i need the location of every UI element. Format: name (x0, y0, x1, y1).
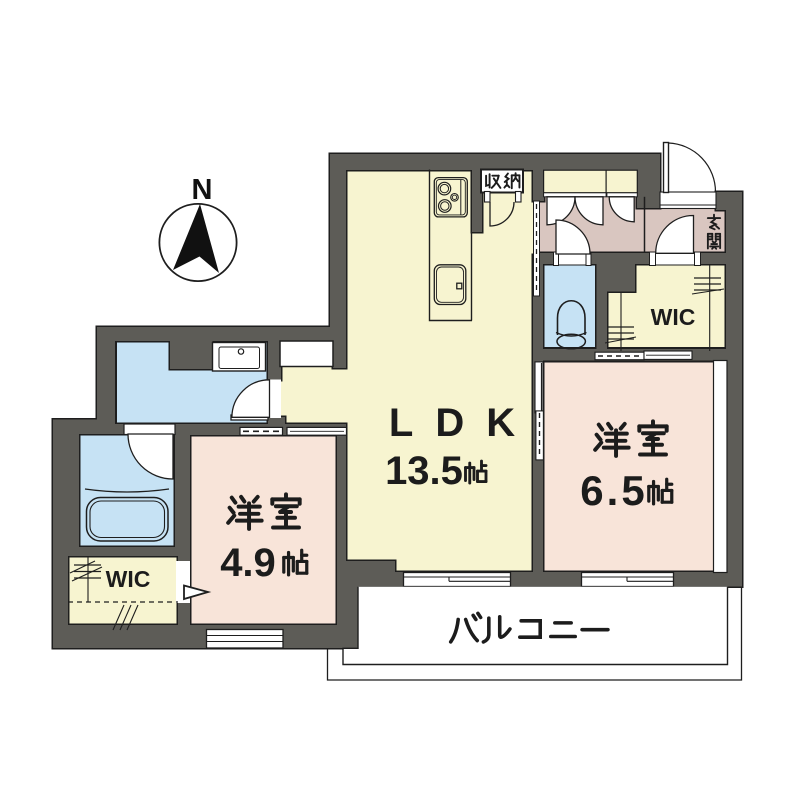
svg-text:6.5: 6.5 (580, 467, 647, 514)
svg-text:LDK: LDK (389, 401, 537, 445)
svg-text:WIC: WIC (651, 304, 696, 330)
svg-text:N: N (192, 174, 213, 206)
svg-text:13.5: 13.5 (385, 449, 463, 493)
svg-text:WIC: WIC (106, 566, 151, 592)
svg-text:4.9: 4.9 (220, 541, 276, 585)
